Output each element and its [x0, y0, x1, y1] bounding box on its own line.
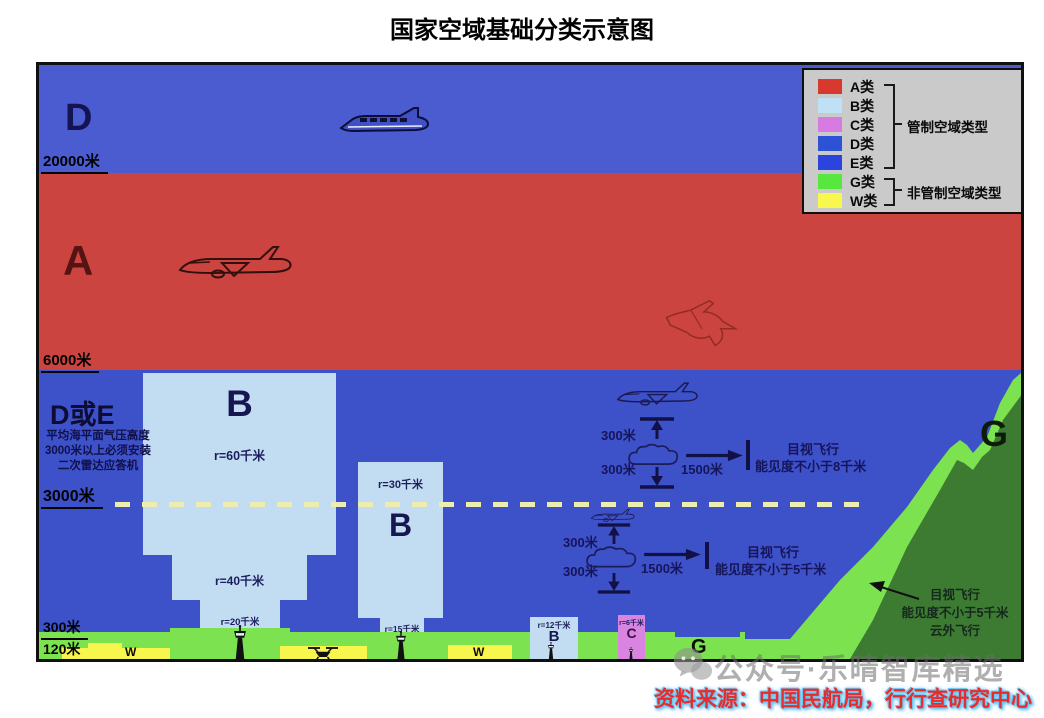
legend-row-e: E类 [804, 153, 1024, 172]
legend-bracket-controlled [884, 84, 895, 169]
legend-label-b: B类 [850, 96, 874, 116]
source-text: 资料来源：中国民航局，行行查研究中心 [654, 683, 1032, 713]
altitude-3000m: 3000米 [41, 482, 103, 509]
legend-swatch-e [818, 155, 842, 170]
legend-swatch-g [818, 174, 842, 189]
legend-swatch-w [818, 193, 842, 208]
altitude-300m: 300米 [41, 617, 88, 640]
altitude-120m: 120米 [41, 639, 88, 662]
legend-label-w: W类 [850, 191, 877, 211]
airspace-classification-diagram: 国家空域基础分类示意图 D A D或E 平均海平面气压高度 3000米以上必须安… [0, 0, 1044, 718]
wechat-icon [672, 645, 714, 685]
legend-row-b: B类 [804, 96, 1024, 115]
legend-bracket-uncontrolled-tick [893, 189, 902, 191]
legend-label-c: C类 [850, 115, 874, 135]
legend-group-controlled: 管制空域类型 [907, 116, 988, 136]
vfr-mountain-line1: 目视飞行 [887, 586, 1023, 604]
page-title: 国家空域基础分类示意图 [0, 10, 1044, 45]
legend-bracket-uncontrolled [884, 178, 895, 206]
altitude-20000m: 20000米 [41, 150, 108, 174]
legend-swatch-d [818, 136, 842, 151]
altitude-6000m: 6000米 [41, 349, 99, 373]
diagram-frame: D A D或E 平均海平面气压高度 3000米以上必须安装 二次雷达应答机 B … [36, 62, 1024, 662]
legend-group-uncontrolled: 非管制空域类型 [907, 182, 1002, 202]
vfr-mountain-line2: 能见度不小于5千米 [887, 604, 1023, 622]
legend-label-e: E类 [850, 153, 873, 173]
legend-label-g: G类 [850, 172, 875, 192]
legend-row-a: A类 [804, 77, 1024, 96]
legend-swatch-b [818, 98, 842, 113]
legend-row-d: D类 [804, 134, 1024, 153]
vfr-mountain-line3: 云外飞行 [887, 622, 1023, 640]
legend-swatch-a [818, 79, 842, 94]
legend-label-d: D类 [850, 134, 874, 154]
legend-bracket-controlled-tick [893, 123, 902, 125]
legend-swatch-c [818, 117, 842, 132]
zone-g-mountain-label: G [980, 413, 1008, 455]
watermark-text: 公众号·乐晴智库精选 [714, 646, 1005, 688]
legend: A类 B类 C类 D类 E类 [802, 68, 1024, 214]
vfr-mountain-note: 目视飞行 能见度不小于5千米 云外飞行 [887, 586, 1023, 640]
legend-label-a: A类 [850, 77, 874, 97]
